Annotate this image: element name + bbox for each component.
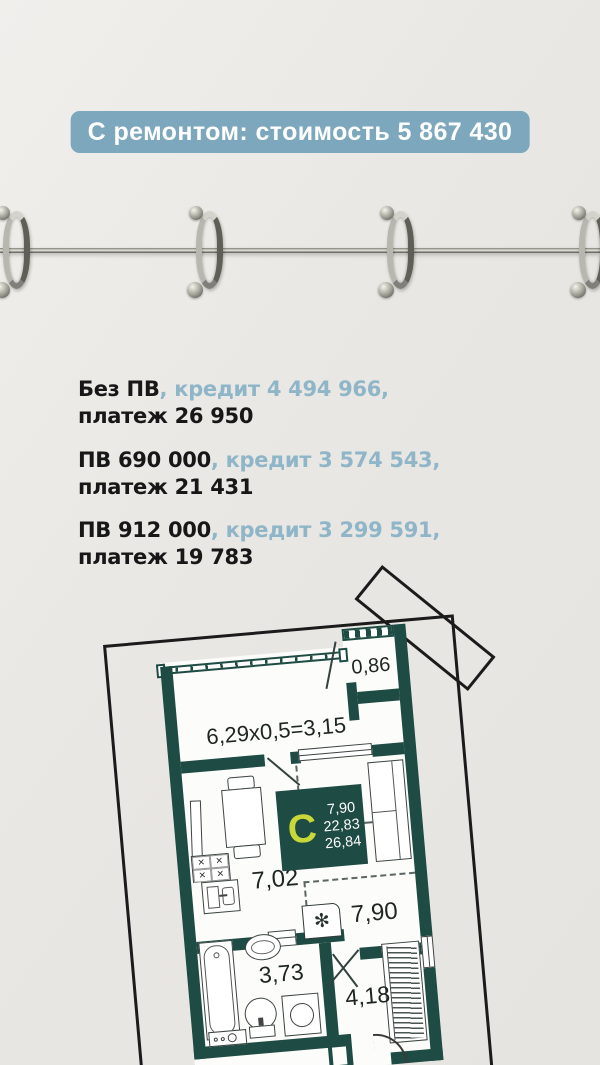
- binder-rod: [0, 248, 600, 253]
- option-credit: , кредит 3 574 543,: [211, 448, 440, 472]
- option-payment: платеж 19 783: [78, 544, 548, 571]
- option-payment: платеж 26 950: [78, 403, 548, 430]
- ring-ball-top: [380, 206, 394, 220]
- binder-ring: [571, 206, 600, 300]
- type-areas: 7,90 22,83 26,84: [321, 799, 362, 853]
- floorplan-frame: ✕✕✕✕ ✻ 0,86 6,29x0,5=3,15 7,02 7,90 3,73…: [103, 614, 501, 1065]
- dining-table: [221, 787, 266, 848]
- infographic-page: { "header": { "badge_label": "С ремонтом…: [0, 0, 600, 1065]
- label-living-area: 7,90: [350, 897, 399, 929]
- washing-machine: [281, 993, 321, 1037]
- ring-loop: [387, 211, 414, 289]
- binder-ring: [188, 206, 230, 300]
- stove: ✕✕✕✕: [191, 853, 231, 883]
- ring-ball-top: [189, 206, 203, 220]
- kitchen-sink: [201, 879, 241, 914]
- ring-ball-bottom: [187, 282, 203, 298]
- option-line-1: ПВ 690 000, кредит 3 574 543,: [78, 447, 548, 474]
- ring-loop: [3, 211, 30, 289]
- option-credit: , кредит 4 494 966,: [160, 377, 389, 401]
- ring-ball-bottom: [0, 282, 10, 298]
- option-lead: ПВ 912 000: [78, 518, 211, 542]
- entrance-door-notch: [332, 1046, 348, 1065]
- option-payment: платеж 21 431: [78, 474, 548, 501]
- ring-ball-top: [572, 206, 586, 220]
- fan-icon: ✻: [301, 902, 342, 939]
- label-storage-area: 0,86: [351, 654, 392, 680]
- ring-ball-bottom: [378, 282, 394, 298]
- ring-ball-bottom: [570, 282, 586, 298]
- apartment-type-badge: С 7,90 22,83 26,84: [275, 784, 368, 871]
- type-letter: С: [286, 808, 318, 850]
- ring-loop: [196, 211, 223, 289]
- option-line-1: Без ПВ, кредит 4 494 966,: [78, 376, 548, 403]
- option-lead: Без ПВ: [78, 377, 160, 401]
- window-right-wall: [421, 935, 436, 968]
- option-line-1: ПВ 912 000, кредит 3 299 591,: [78, 517, 548, 544]
- label-bathroom-area: 3,73: [258, 958, 305, 989]
- binder-ring: [0, 206, 37, 300]
- toilet: [243, 996, 278, 1039]
- floorplan: ✕✕✕✕ ✻ 0,86 6,29x0,5=3,15 7,02 7,90 3,73…: [158, 623, 449, 1065]
- type-total-area: 26,84: [324, 833, 362, 853]
- ring-loop: [579, 211, 600, 289]
- option-downpayment-912: ПВ 912 000, кредит 3 299 591, платеж 19 …: [78, 517, 548, 570]
- option-no-downpayment: Без ПВ, кредит 4 494 966, платеж 26 950: [78, 376, 548, 429]
- option-credit: , кредит 3 299 591,: [211, 518, 440, 542]
- binder-ring: [379, 206, 421, 300]
- label-hall-area: 4,18: [344, 981, 391, 1012]
- option-downpayment-690: ПВ 690 000, кредит 3 574 543, платеж 21 …: [78, 447, 548, 500]
- glazing-end-cap: [338, 648, 348, 663]
- price-badge: С ремонтом: стоимость 5 867 430: [71, 111, 530, 153]
- option-lead: ПВ 690 000: [78, 448, 211, 472]
- chair: [233, 844, 261, 859]
